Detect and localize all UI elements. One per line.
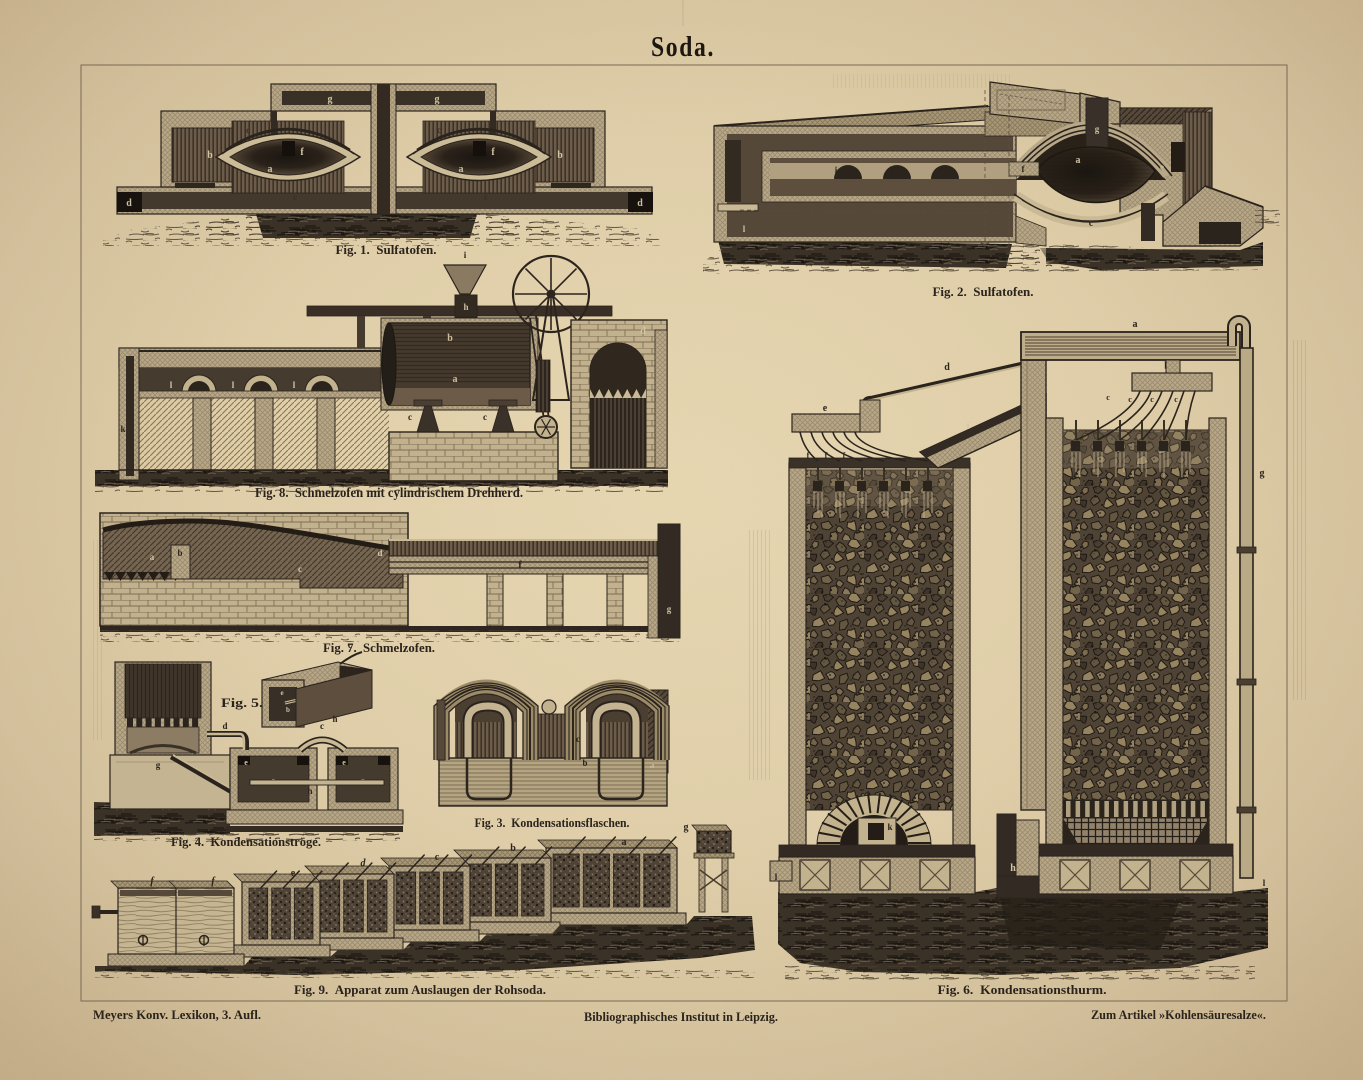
svg-text:c: c <box>298 564 302 574</box>
svg-text:Fig. 2. Sulfatofen.: Fig. 2. Sulfatofen. <box>933 284 1034 299</box>
svg-text:k: k <box>887 822 892 832</box>
svg-text:Fig. 1. Sulfatofen.: Fig. 1. Sulfatofen. <box>336 242 437 257</box>
svg-text:e: e <box>823 403 828 414</box>
svg-text:c: c <box>1106 393 1110 402</box>
svg-text:c: c <box>483 412 487 422</box>
svg-text:a: a <box>650 760 655 770</box>
svg-text:k: k <box>120 424 125 434</box>
svg-text:c: c <box>1128 395 1132 404</box>
svg-text:a: a <box>622 837 627 848</box>
svg-text:b: b <box>447 333 453 344</box>
svg-text:g: g <box>156 760 161 770</box>
svg-text:d: d <box>126 198 132 209</box>
svg-text:Fig. 8. Schmelzofen mit cylin: Fig. 8. Schmelzofen mit cylindrischem Dr… <box>255 485 523 500</box>
svg-text:Fig. 9. Apparat zum Auslaugen: Fig. 9. Apparat zum Auslaugen der Rohsod… <box>294 982 546 997</box>
svg-text:c: c <box>408 412 412 422</box>
svg-text:d: d <box>377 548 382 558</box>
svg-text:h: h <box>332 714 337 724</box>
svg-text:c: c <box>484 192 488 202</box>
svg-text:a: a <box>268 164 273 175</box>
svg-text:f: f <box>807 451 810 460</box>
svg-text:Fig. 7. Schmelzofen.: Fig. 7. Schmelzofen. <box>323 640 435 655</box>
svg-text:c: c <box>435 852 440 863</box>
svg-text:Fig. 5.: Fig. 5. <box>221 695 263 710</box>
svg-text:e: e <box>244 758 248 767</box>
svg-text:g: g <box>328 94 333 105</box>
svg-text:d: d <box>640 326 646 337</box>
svg-text:g: g <box>667 604 672 614</box>
svg-text:g: g <box>435 94 440 105</box>
svg-text:a: a <box>150 552 155 562</box>
svg-text:c: c <box>293 192 297 202</box>
svg-text:h: h <box>463 302 468 312</box>
svg-text:h: h <box>307 786 312 796</box>
svg-text:Meyers Konv. Lexikon, 3. Aufl.: Meyers Konv. Lexikon, 3. Aufl. <box>93 1007 261 1022</box>
svg-text:Bibliographisches Institut in: Bibliographisches Institut in Leipzig. <box>584 1010 778 1024</box>
svg-text:c: c <box>1089 218 1094 229</box>
svg-text:h: h <box>945 165 950 175</box>
svg-text:e: e <box>291 868 296 879</box>
svg-text:b: b <box>582 758 587 768</box>
svg-text:g: g <box>1260 468 1265 479</box>
svg-text:b: b <box>177 548 182 558</box>
svg-text:b: b <box>510 843 516 854</box>
svg-text:c: c <box>320 721 324 731</box>
svg-text:a: a <box>1076 155 1081 166</box>
svg-text:c: c <box>576 734 580 744</box>
svg-text:Fig. 4. Kondensationströge.: Fig. 4. Kondensationströge. <box>171 834 321 849</box>
svg-text:b: b <box>286 706 290 714</box>
svg-text:e: e <box>1160 162 1164 172</box>
svg-text:f: f <box>843 451 846 460</box>
svg-text:h: h <box>1010 863 1016 874</box>
svg-text:g: g <box>1095 124 1100 134</box>
svg-text:c: c <box>246 125 250 135</box>
svg-text:e: e <box>342 758 346 767</box>
svg-text:e: e <box>280 689 283 697</box>
svg-text:Fig. 6. Kondensationsthurm.: Fig. 6. Kondensationsthurm. <box>938 982 1107 997</box>
svg-text:d: d <box>944 362 950 373</box>
svg-text:c: c <box>437 125 441 135</box>
svg-text:a: a <box>1133 319 1138 330</box>
svg-text:g: g <box>684 822 689 833</box>
svg-text:d: d <box>222 721 227 731</box>
svg-text:c: c <box>1150 395 1154 404</box>
svg-text:a: a <box>459 164 464 175</box>
svg-text:i: i <box>967 421 970 432</box>
svg-text:c: c <box>1174 395 1178 404</box>
svg-text:Zum Artikel »Kohlensäuresalze«: Zum Artikel »Kohlensäuresalze«. <box>1091 1007 1266 1022</box>
svg-text:Soda.: Soda. <box>651 31 715 63</box>
svg-text:k: k <box>889 165 894 175</box>
svg-text:a: a <box>453 374 458 385</box>
svg-text:b: b <box>557 150 563 161</box>
svg-text:d: d <box>637 198 643 209</box>
svg-text:f: f <box>825 451 828 460</box>
svg-text:Fig. 3. Kondensationsflaschen: Fig. 3. Kondensationsflaschen. <box>475 815 630 830</box>
svg-text:b: b <box>207 150 213 161</box>
